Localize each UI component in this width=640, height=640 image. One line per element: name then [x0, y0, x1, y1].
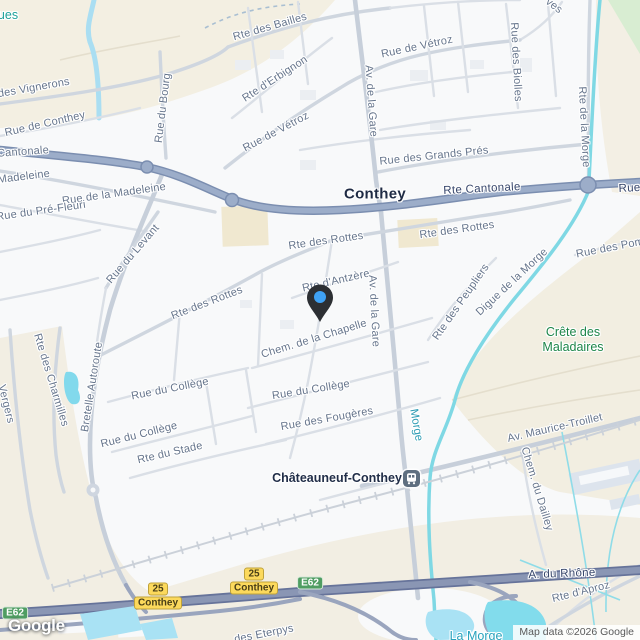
train-glyph — [403, 470, 420, 487]
map-base-layer — [0, 0, 640, 640]
exit-number: 25 — [148, 583, 167, 596]
google-logo[interactable]: Google — [8, 616, 65, 636]
map-attribution: Map data ©2026 Google — [513, 625, 640, 640]
e-route-badge: E62 — [297, 577, 323, 590]
motorway-exit-badge: 25Conthey — [230, 568, 278, 595]
exit-number: 25 — [244, 568, 263, 581]
exit-name: Conthey — [230, 582, 278, 595]
exit-name: Conthey — [134, 597, 182, 610]
train-station-icon[interactable] — [403, 470, 420, 487]
map-canvas[interactable]: Rte des BaillesRte d'ErbignonRue de Vétr… — [0, 0, 640, 640]
motorway-exit-badge: 25Conthey — [134, 583, 182, 610]
